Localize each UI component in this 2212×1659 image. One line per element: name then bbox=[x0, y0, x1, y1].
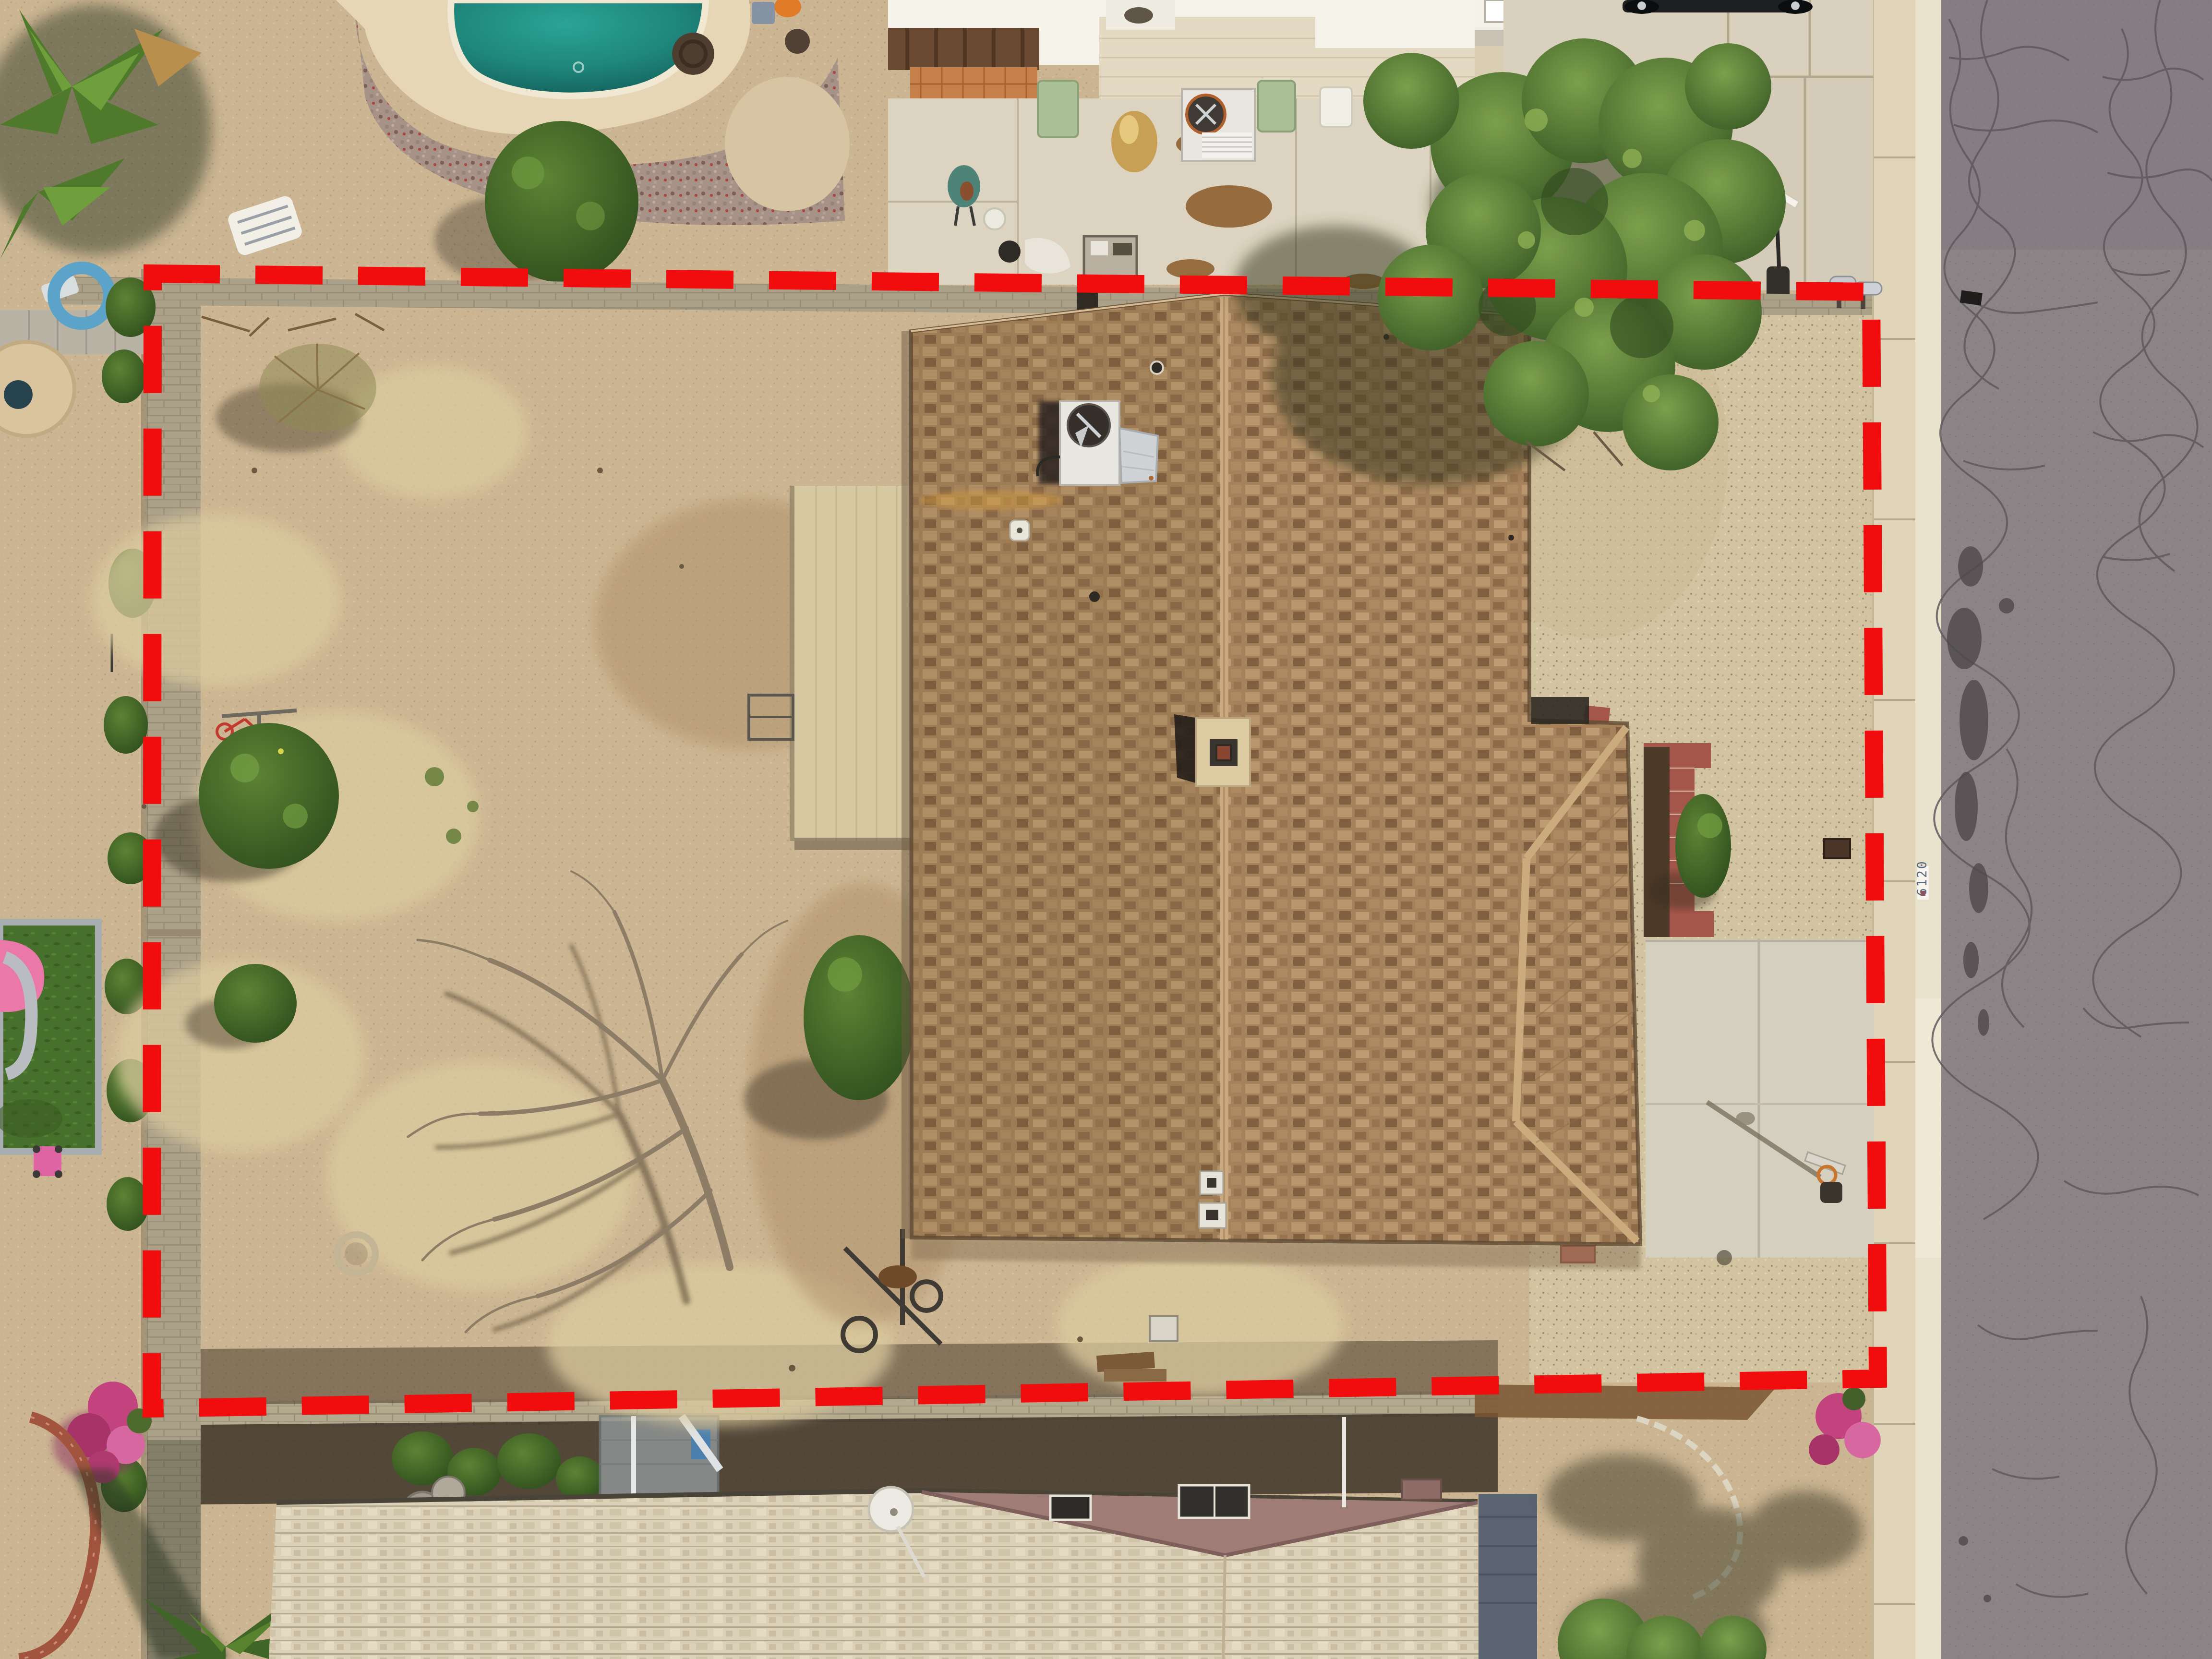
aerial-photo: 6120 bbox=[0, 0, 2212, 1659]
cooler-duct bbox=[1119, 428, 1158, 483]
rust-streak bbox=[919, 491, 1063, 510]
window-frame-item bbox=[1150, 1316, 1178, 1341]
suv bbox=[1623, 0, 1813, 14]
sidewalk bbox=[1872, 0, 1916, 1659]
ac-unit bbox=[1182, 89, 1255, 161]
curb-address: 6120 bbox=[1915, 860, 1929, 900]
umbrella-base bbox=[785, 29, 810, 54]
kettle-grill bbox=[998, 240, 1021, 263]
deck-gravel bbox=[725, 77, 850, 211]
driveway-apron bbox=[1915, 998, 1942, 1258]
spa bbox=[0, 342, 74, 436]
regrowth-tree bbox=[804, 935, 915, 1100]
pergola bbox=[888, 28, 1039, 70]
window bbox=[1050, 1496, 1091, 1520]
toy-car bbox=[33, 1145, 62, 1178]
entry-alcove-shadow bbox=[1531, 697, 1589, 724]
patio-mat bbox=[752, 2, 775, 24]
street-zone: 6120 bbox=[1872, 0, 2212, 1659]
cooler-box bbox=[1320, 87, 1352, 127]
terracotta-patio bbox=[910, 67, 1037, 101]
curb-number: 6120 bbox=[1915, 860, 1929, 896]
curb-flower-icon bbox=[1921, 891, 1925, 896]
backyard-bush-2 bbox=[214, 964, 297, 1043]
white-bucket bbox=[984, 208, 1005, 229]
mulch-bed bbox=[1475, 1384, 1776, 1420]
green-trash-bin bbox=[1038, 81, 1078, 137]
planter-bush bbox=[1675, 794, 1731, 898]
chimney bbox=[1174, 714, 1250, 786]
backyard-bush bbox=[199, 723, 339, 869]
roof-box bbox=[1402, 1479, 1441, 1500]
large-bush bbox=[485, 121, 638, 282]
driveway bbox=[1646, 939, 1874, 1258]
curb-gutter bbox=[1915, 0, 1941, 1659]
green-trash-bin-2 bbox=[1258, 81, 1295, 132]
utility-lid bbox=[1824, 839, 1850, 858]
blue-gray-roof bbox=[1479, 1494, 1537, 1659]
firepit-table bbox=[672, 33, 714, 75]
